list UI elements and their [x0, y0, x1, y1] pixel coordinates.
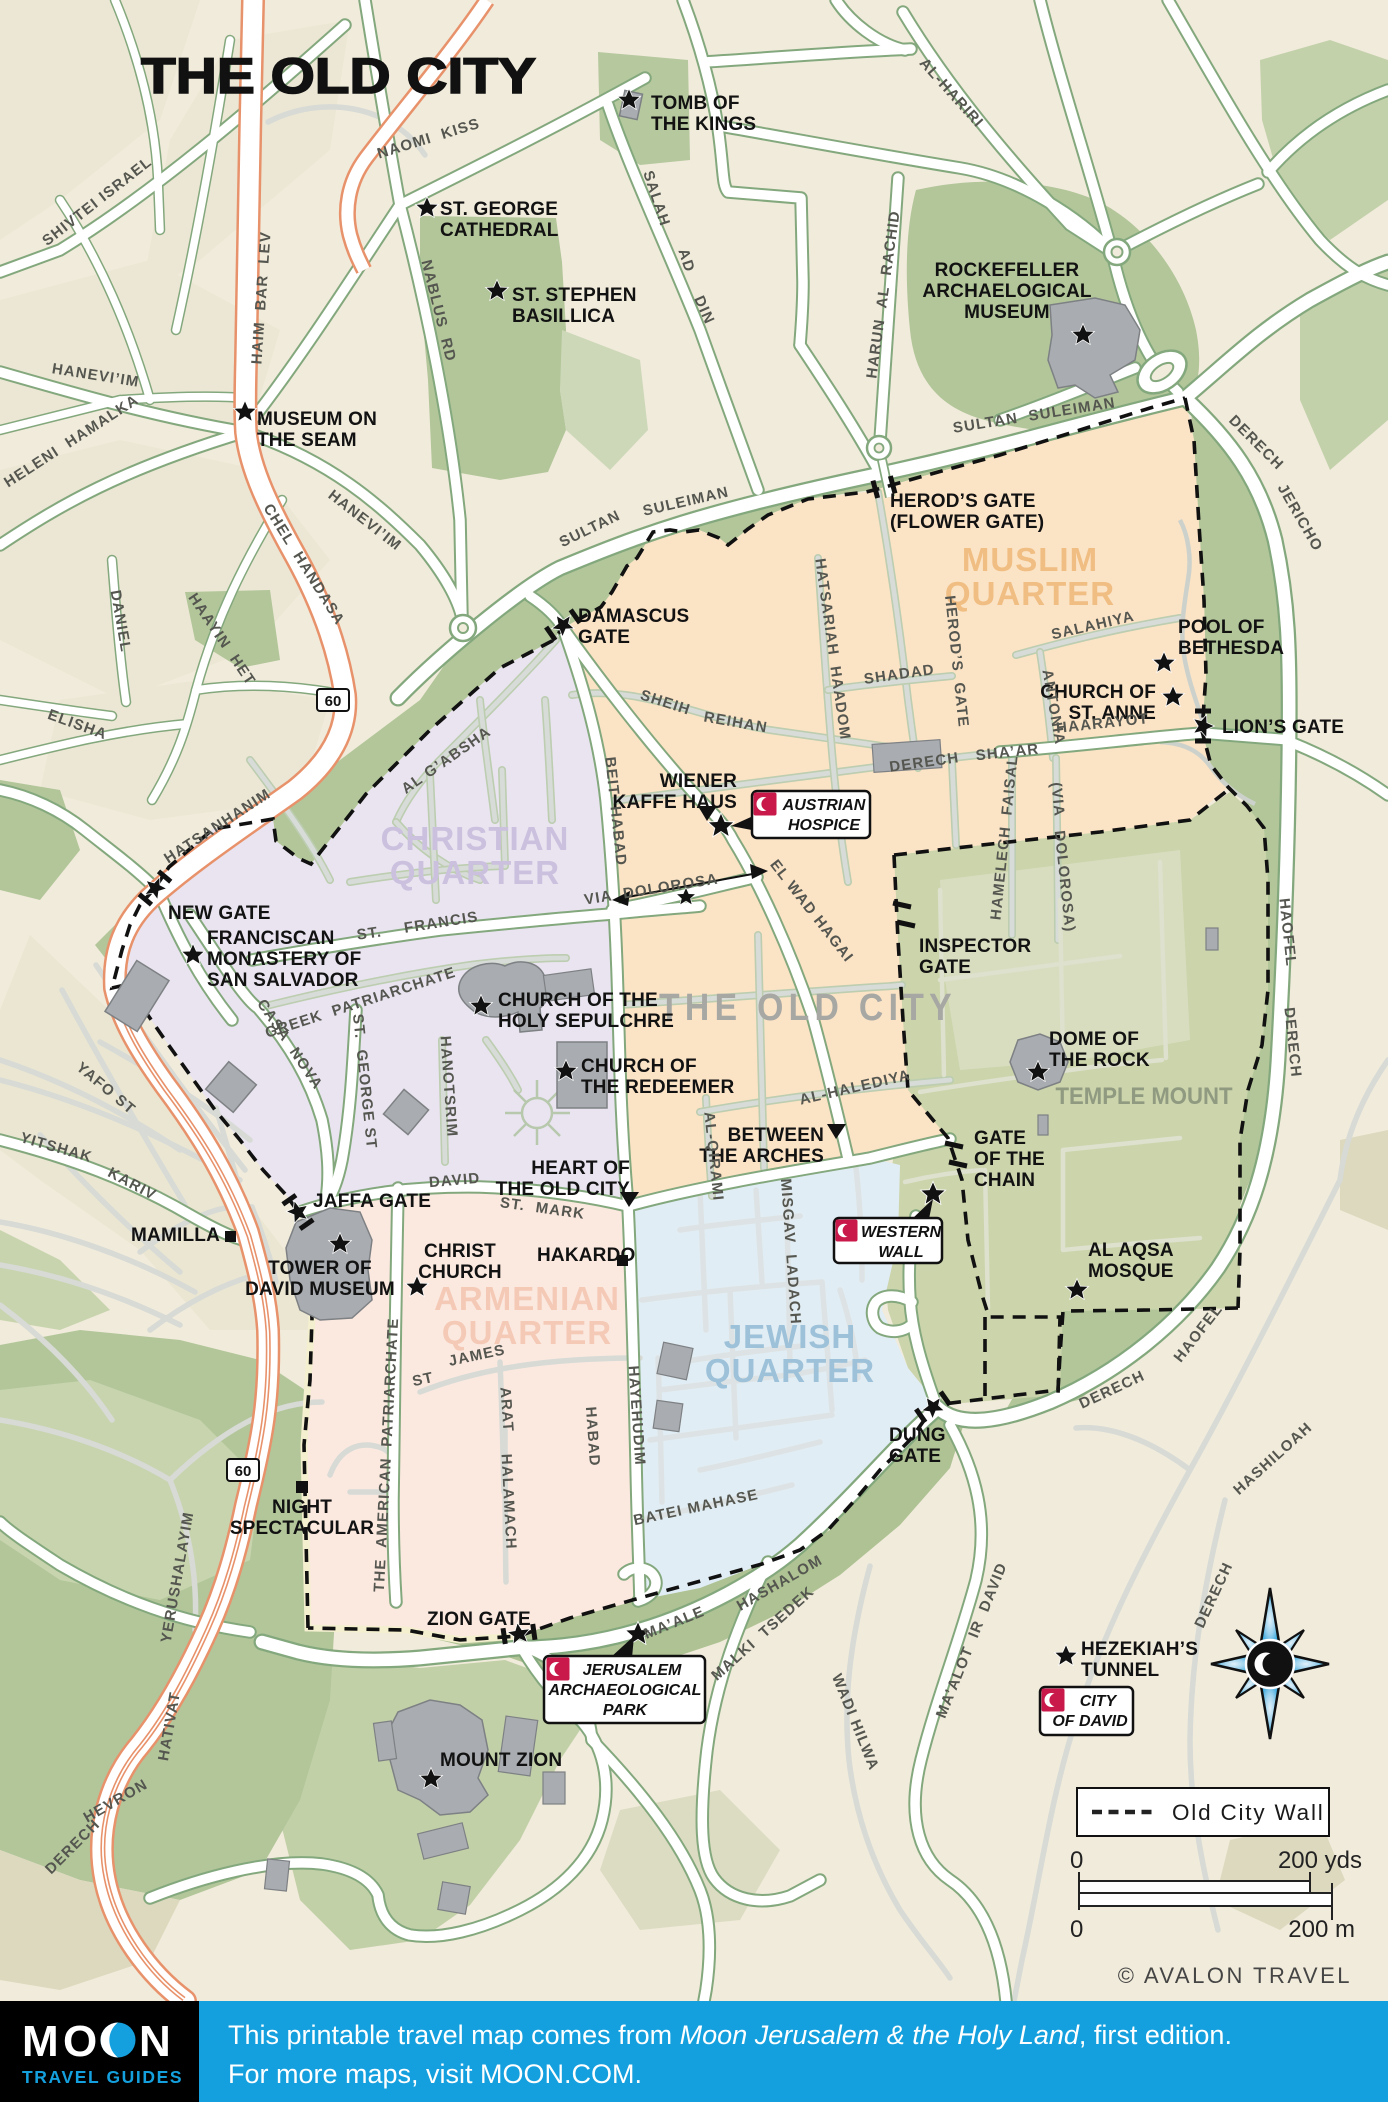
svg-text:CITY: CITY: [1080, 1693, 1118, 1710]
svg-text:WIENER: WIENER: [660, 771, 737, 792]
svg-text:CATHEDRAL: CATHEDRAL: [440, 220, 559, 241]
svg-text:GATE: GATE: [578, 627, 630, 648]
svg-text:GATE: GATE: [974, 1128, 1026, 1149]
svg-text:HEROD’S GATE: HEROD’S GATE: [890, 491, 1036, 512]
svg-text:MOUNT ZION: MOUNT ZION: [440, 1750, 562, 1771]
svg-text:TOWER OF: TOWER OF: [268, 1258, 372, 1279]
svg-text:SAN SALVADOR: SAN SALVADOR: [207, 970, 359, 991]
svg-text:This printable travel map come: This printable travel map comes from Moo…: [228, 2020, 1232, 2050]
svg-text:THE OLD CITY: THE OLD CITY: [141, 48, 536, 104]
svg-text:HOLY SEPULCHRE: HOLY SEPULCHRE: [498, 1011, 674, 1032]
svg-text:KAFFE HAUS: KAFFE HAUS: [613, 792, 737, 813]
svg-text:NEW GATE: NEW GATE: [168, 903, 271, 924]
svg-text:ST. GEORGE: ST. GEORGE: [440, 199, 558, 220]
svg-text:CHURCH OF THE: CHURCH OF THE: [498, 990, 658, 1011]
svg-text:TUNNEL: TUNNEL: [1081, 1660, 1159, 1681]
svg-text:HEZEKIAH’S: HEZEKIAH’S: [1081, 1639, 1198, 1660]
svg-text:OF DAVID: OF DAVID: [1052, 1713, 1128, 1730]
svg-text:DAMASCUS: DAMASCUS: [578, 606, 689, 627]
svg-text:TRAVEL GUIDES: TRAVEL GUIDES: [22, 2067, 183, 2087]
svg-text:MUSEUM: MUSEUM: [964, 302, 1050, 323]
svg-text:BETWEEN: BETWEEN: [728, 1125, 824, 1146]
svg-text:DOME OF: DOME OF: [1049, 1029, 1139, 1050]
svg-text:ARCHAEOLOGICAL: ARCHAEOLOGICAL: [548, 1682, 702, 1699]
svg-text:ST.: ST.: [356, 923, 383, 943]
svg-text:AUSTRIAN: AUSTRIAN: [782, 797, 866, 814]
svg-text:JAFFA GATE: JAFFA GATE: [313, 1191, 431, 1212]
svg-text:MUSLIM: MUSLIM: [962, 541, 1098, 578]
svg-text:TEMPLE MOUNT: TEMPLE MOUNT: [1056, 1083, 1233, 1110]
svg-text:GATE: GATE: [889, 1446, 941, 1467]
svg-text:ARAT: ARAT: [496, 1386, 516, 1432]
svg-text:ZION GATE: ZION GATE: [427, 1609, 531, 1630]
svg-text:QUARTER: QUARTER: [390, 854, 560, 891]
svg-text:WALL: WALL: [878, 1244, 923, 1261]
svg-text:TOMB OF: TOMB OF: [651, 93, 740, 114]
svg-text:QUARTER: QUARTER: [945, 575, 1115, 612]
svg-text:MOSQUE: MOSQUE: [1088, 1261, 1174, 1282]
svg-text:MONASTERY OF: MONASTERY OF: [207, 949, 361, 970]
svg-text:HEART OF: HEART OF: [531, 1158, 630, 1179]
svg-text:ARMENIAN: ARMENIAN: [434, 1280, 620, 1317]
svg-text:AL AQSA: AL AQSA: [1088, 1240, 1174, 1261]
svg-text:BASILLICA: BASILLICA: [512, 306, 615, 327]
svg-text:(VIA: (VIA: [1047, 781, 1068, 817]
svg-text:ST. STEPHEN: ST. STEPHEN: [512, 285, 637, 306]
svg-text:SPECTACULAR: SPECTACULAR: [230, 1518, 374, 1539]
svg-text:THE SEAM: THE SEAM: [257, 430, 357, 451]
svg-text:CHRISTIAN: CHRISTIAN: [381, 820, 570, 857]
svg-text:QUARTER: QUARTER: [705, 1352, 875, 1389]
svg-text:FRANCISCAN: FRANCISCAN: [207, 928, 335, 949]
svg-text:QUARTER: QUARTER: [442, 1314, 612, 1351]
svg-text:200 yds: 200 yds: [1278, 1847, 1362, 1874]
svg-text:BETHESDA: BETHESDA: [1178, 638, 1284, 659]
svg-text:60: 60: [325, 693, 342, 710]
svg-text:MUSEUM ON: MUSEUM ON: [257, 409, 377, 430]
svg-text:CHAIN: CHAIN: [974, 1170, 1035, 1191]
svg-text:JERUSALEM: JERUSALEM: [583, 1662, 682, 1679]
svg-text:ROCKEFELLER: ROCKEFELLER: [935, 260, 1080, 281]
svg-text:INSPECTOR: INSPECTOR: [919, 936, 1031, 957]
svg-text:THE KINGS: THE KINGS: [651, 114, 756, 135]
svg-text:© AVALON TRAVEL: © AVALON TRAVEL: [1118, 1963, 1352, 1988]
svg-text:OF THE: OF THE: [974, 1149, 1045, 1170]
svg-text:CHURCH OF: CHURCH OF: [581, 1056, 697, 1077]
svg-text:GATE: GATE: [919, 957, 971, 978]
svg-text:HOSPICE: HOSPICE: [788, 817, 861, 834]
svg-text:ARCHAELOGICAL: ARCHAELOGICAL: [922, 281, 1092, 302]
svg-text:0: 0: [1070, 1847, 1083, 1874]
svg-text:THE OLD CITY: THE OLD CITY: [659, 987, 957, 1029]
svg-text:CHURCH: CHURCH: [418, 1262, 502, 1283]
svg-text:O: O: [63, 2017, 97, 2066]
svg-text:HAKARDO: HAKARDO: [537, 1245, 636, 1266]
svg-text:0: 0: [1070, 1916, 1083, 1943]
svg-text:(FLOWER GATE): (FLOWER GATE): [890, 512, 1044, 533]
svg-text:MAMILLA: MAMILLA: [131, 1225, 220, 1246]
svg-text:N: N: [139, 2017, 171, 2066]
svg-text:WESTERN: WESTERN: [861, 1224, 941, 1241]
svg-text:DUNG: DUNG: [889, 1425, 946, 1446]
svg-text:M: M: [22, 2017, 59, 2066]
svg-text:NIGHT: NIGHT: [272, 1497, 332, 1518]
svg-text:Old City Wall: Old City Wall: [1172, 1800, 1325, 1825]
svg-text:For more maps, visit MOON.COM.: For more maps, visit MOON.COM.: [228, 2059, 642, 2089]
svg-text:THE REDEEMER: THE REDEEMER: [581, 1077, 734, 1098]
svg-text:CHRIST: CHRIST: [424, 1241, 496, 1262]
svg-text:200 m: 200 m: [1288, 1916, 1355, 1943]
svg-text:PARK: PARK: [603, 1702, 649, 1719]
svg-text:DAVID MUSEUM: DAVID MUSEUM: [245, 1279, 395, 1300]
svg-text:LION’S GATE: LION’S GATE: [1222, 717, 1344, 738]
svg-text:POOL OF: POOL OF: [1178, 617, 1265, 638]
svg-text:THE ROCK: THE ROCK: [1049, 1050, 1150, 1071]
svg-text:60: 60: [235, 1463, 252, 1480]
